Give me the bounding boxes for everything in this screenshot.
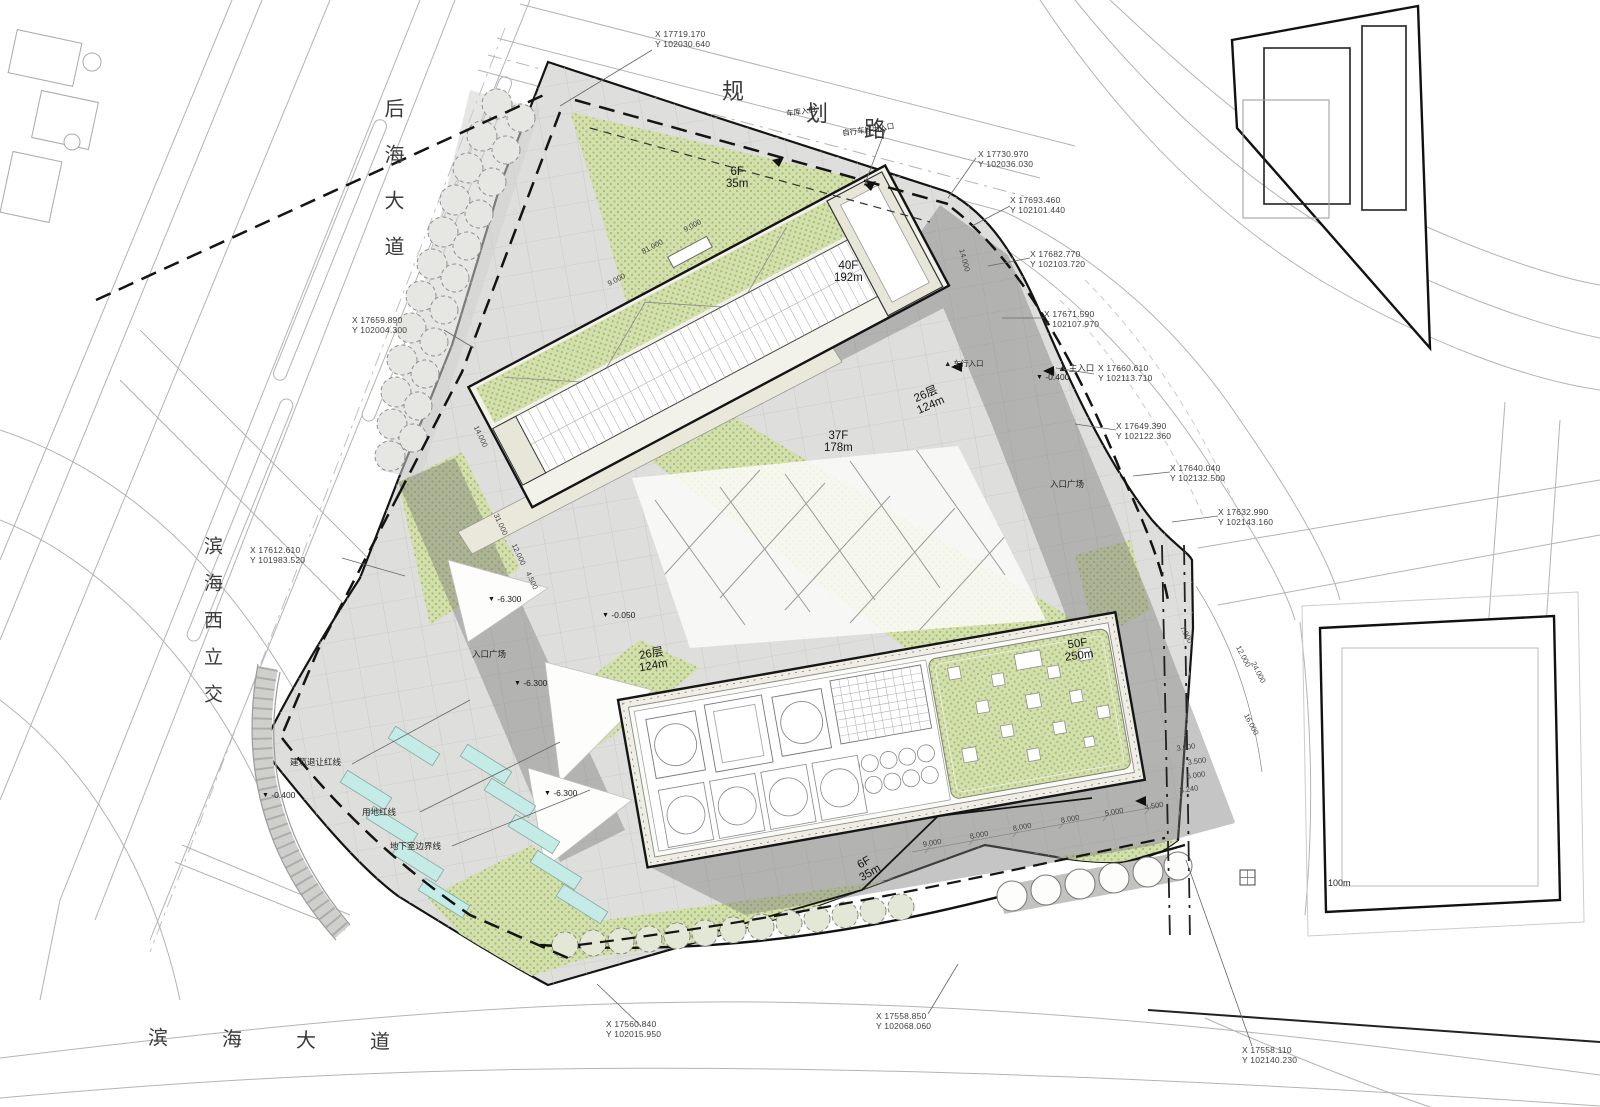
adjacent-parcel-northeast (1232, 6, 1430, 348)
adjacent-parcel-southeast (1302, 592, 1584, 936)
scale-legend-box (1240, 870, 1255, 885)
site-plan-page: 规 划 路 后海大道 滨海西立交 滨海大道 6F35m 40F192m 37F1… (0, 0, 1600, 1107)
adjacent-buildings-northwest (0, 30, 101, 223)
site-plan-drawing (0, 0, 1600, 1107)
